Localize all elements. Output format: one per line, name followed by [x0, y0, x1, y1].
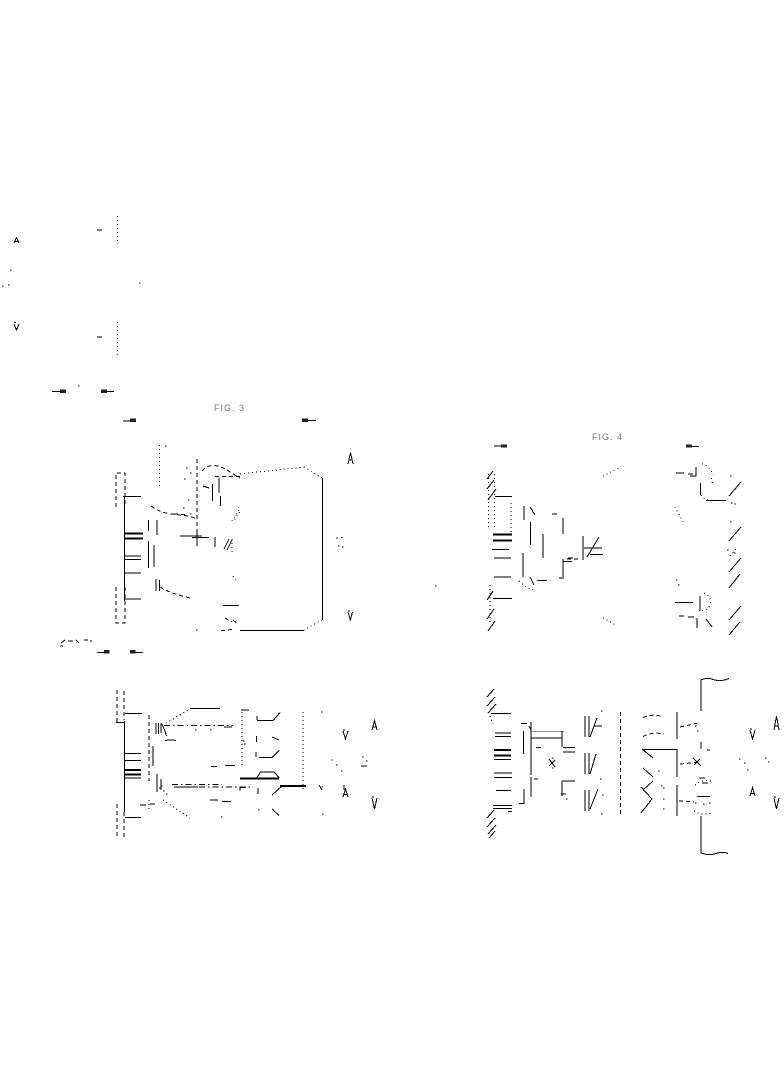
svg-text:FIG. 4: FIG. 4 [592, 432, 623, 442]
svg-text:FIG. 3: FIG. 3 [214, 403, 245, 413]
